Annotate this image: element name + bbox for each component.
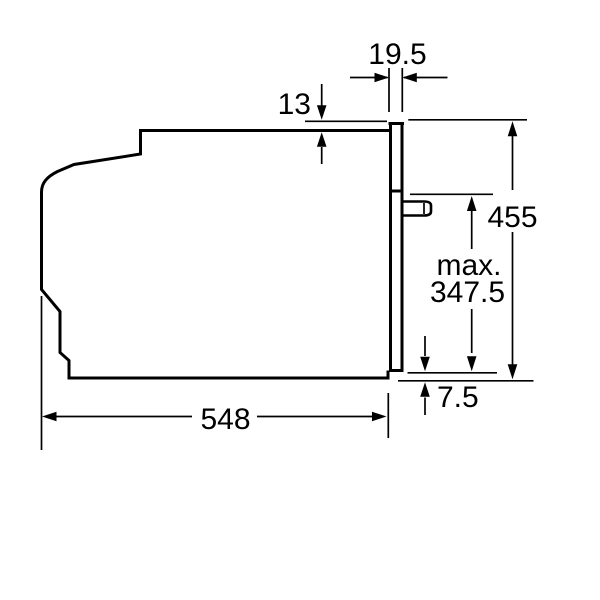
arrow-down-icon [467,356,477,371]
dim-label-door-projection-value: 347.5 [430,276,505,309]
arrow-down-icon [508,364,518,379]
appliance-body [42,131,391,379]
arrow-down-icon [420,357,430,372]
dimension-bottom-overlap: 7.5 [420,336,479,415]
dim-label-bottom-overlap: 7.5 [437,381,479,414]
oven-side-view-diagram: 19.5 13 455 max [0,0,600,600]
arrow-right-icon [375,73,390,82]
arrow-right-icon [372,412,387,422]
appliance-body-outline [42,131,391,379]
front-panel [389,124,432,371]
arrow-up-icon [420,382,430,397]
door-handle [404,202,432,216]
dimension-top-gap: 19.5 [350,38,448,112]
arrow-up-icon [508,121,518,136]
arrow-up-icon [467,196,477,211]
arrow-left-icon [42,412,57,422]
technical-drawing-canvas: 19.5 13 455 max [0,0,600,600]
dim-label-top-gap: 19.5 [368,38,426,71]
dim-label-height: 455 [487,201,537,234]
dim-label-depth: 548 [200,403,250,436]
dim-label-frame-overlap: 13 [278,88,311,121]
arrow-left-icon [402,73,417,82]
arrow-down-icon [317,105,327,120]
dimension-depth: 548 [42,296,389,450]
arrow-up-icon [317,132,327,147]
dimension-frame-overlap: 13 [278,84,387,164]
